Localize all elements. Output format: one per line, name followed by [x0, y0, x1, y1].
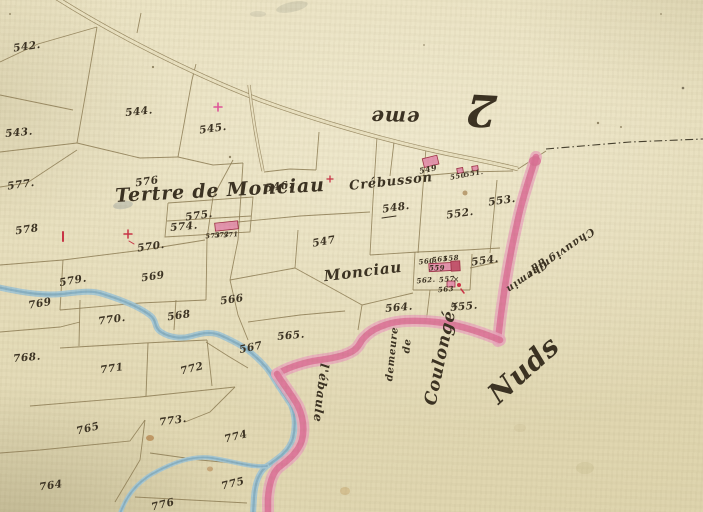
label-parcel-578: 578 — [15, 223, 40, 237]
label-parcel-570: 570. — [137, 240, 166, 254]
label-parcel-774: 774 — [223, 429, 248, 445]
label-chemin-line-3: Chauvignier — [524, 226, 596, 281]
label-parcel-544: 544. — [125, 105, 154, 118]
label-demeure-de: de — [402, 338, 414, 354]
label-parcel-579: 579. — [59, 273, 88, 288]
label-parcel-552: 552. — [446, 207, 475, 221]
label-parcel-769: 769 — [28, 297, 53, 311]
label-sheet-number: 2 — [464, 86, 498, 132]
label-parcel-564: 564. — [385, 302, 413, 315]
label-parcel-559: 559 — [429, 265, 445, 272]
label-parcel-554: 554. — [471, 254, 500, 268]
label-parcel-773: 773. — [159, 414, 188, 428]
label-parcel-542: 542. — [13, 40, 42, 54]
label-parcel-545: 545. — [199, 122, 228, 136]
label-parcel-768: 768. — [13, 352, 41, 365]
label-sheet-suffix: eme — [370, 108, 419, 129]
label-parcel-553: 553. — [488, 194, 517, 208]
label-parcel-566: 566 — [220, 293, 245, 307]
label-parcel-563: 563 — [438, 285, 455, 293]
label-monciau: Monciau — [323, 260, 403, 284]
label-check-mark-555: × — [451, 301, 459, 311]
label-parcel-577: 577. — [7, 178, 36, 192]
label-parcel-775: 775 — [220, 476, 245, 492]
cadastral-map-sheet: Tertre de MonciauCrébussonMonciauNuds2em… — [0, 0, 703, 512]
label-parcel-547: 547 — [312, 235, 337, 249]
label-check-mark-557: × — [453, 276, 460, 284]
label-parcel-562: 562. — [416, 276, 436, 285]
label-parcel-548: 548. — [382, 201, 411, 215]
label-parcel-765: 765 — [75, 421, 100, 437]
label-parcel-561: 561 — [432, 255, 449, 263]
label-parcel-770: 770. — [98, 313, 127, 327]
label-parcel-549: 549 — [418, 163, 437, 175]
label-parcel-551: 551. — [464, 168, 484, 178]
label-parcel-772: 772 — [179, 361, 204, 377]
labels-layer: Tertre de MonciauCrébussonMonciauNuds2em… — [0, 0, 703, 512]
label-ebaule: l'ébaule — [311, 363, 330, 423]
label-demeure: demeure — [385, 326, 401, 382]
label-parcel-575: 575. — [185, 209, 214, 223]
label-coulonge: Coulongé — [423, 309, 460, 407]
label-parcel-573: 573 — [205, 232, 221, 240]
label-parcel-567: 567 — [238, 340, 263, 355]
label-parcel-776: 776 — [150, 497, 175, 512]
label-parcel-771: 771 — [100, 362, 125, 376]
label-parcel-565: 565. — [277, 330, 305, 343]
label-parcel-543: 543. — [5, 127, 33, 140]
label-nuds: Nuds — [483, 331, 565, 408]
label-parcel-569: 569 — [141, 270, 166, 284]
label-parcel-568: 568 — [167, 309, 192, 323]
label-parcel-764: 764 — [39, 479, 64, 493]
